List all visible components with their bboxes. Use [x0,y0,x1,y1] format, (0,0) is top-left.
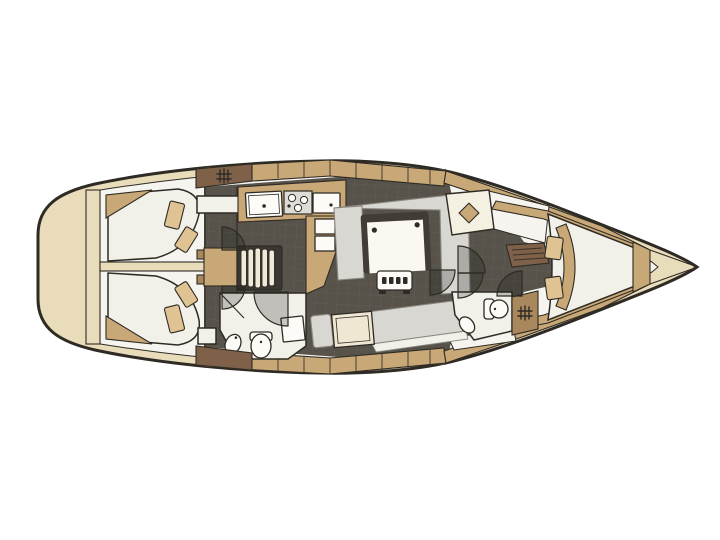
nav-desk [332,311,375,347]
fridge-box [315,219,335,234]
pillow [545,236,564,260]
toilet [484,299,508,319]
stool-slat [396,277,401,284]
toilet-flush [494,308,496,310]
toilet-flush [260,341,262,343]
burner [300,196,307,203]
stove [284,191,312,214]
step-tread [262,249,268,287]
wardrobe [446,190,494,235]
toilet-bowl [251,334,271,358]
galley-sink [245,191,282,218]
stool-slat [389,277,394,284]
pillow [545,276,564,300]
starboard-shelf-box [198,328,216,344]
aft-cabin-port [106,189,199,261]
shelf-locker-body [506,243,549,267]
stool-slat [382,277,387,284]
bow-bulkhead [633,242,650,292]
floor-plan-svg [0,0,720,540]
step-tread [241,250,247,286]
stool-slat [403,277,408,284]
step-tread [248,249,254,287]
burner [288,194,295,201]
saloon-table [361,211,432,273]
port-shelf-locker [506,243,549,267]
aft-cabin-divider [100,262,206,271]
table-top [367,220,426,274]
aft-cabin-starboard [106,273,199,345]
transom-bulkhead [86,190,100,344]
burner [294,204,301,211]
nav-station [310,311,374,348]
fridge-box [315,236,335,251]
yacht-floor-plan [0,0,720,540]
companionway-steps [237,246,282,290]
step-tread [255,248,261,288]
toilet [250,332,272,358]
saloon-stool [377,271,412,294]
burner-knob [287,204,290,207]
step-tread [269,250,275,286]
sink-drain [329,203,332,206]
toilet-bowl [490,300,508,318]
engine-box [204,248,237,286]
nav-seat [310,314,333,348]
saloon-settee-arm [334,206,364,280]
